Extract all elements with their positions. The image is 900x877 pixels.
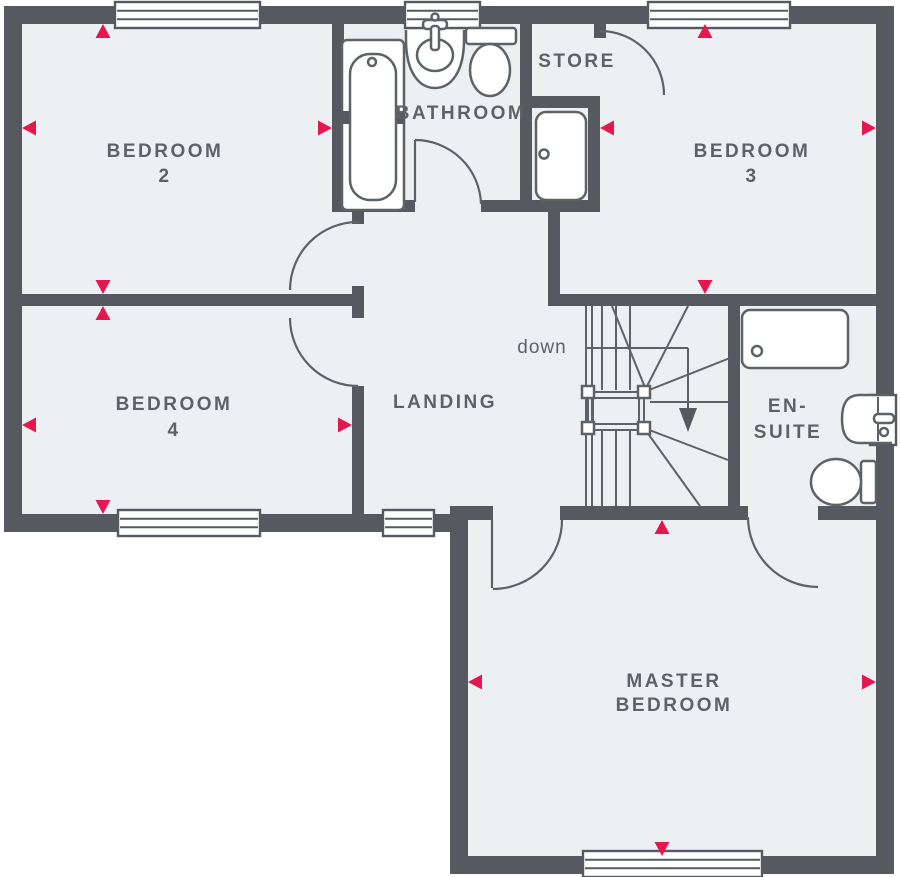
- bedroom3-number: 3: [745, 166, 758, 188]
- store-label: STORE: [538, 51, 616, 73]
- floor-plan: BEDROOM 2 BEDROOM 3 BEDROOM 4 BATHROOM S…: [0, 0, 900, 877]
- cylinder-icon: [536, 112, 586, 200]
- bedroom3-label: BEDROOM: [694, 141, 811, 163]
- ensuite-toilet-icon: [811, 459, 876, 505]
- bathroom-label: BATHROOM: [396, 103, 526, 125]
- bedroom2-number: 2: [158, 166, 171, 188]
- window-landing: [383, 510, 434, 536]
- bedroom4-label: BEDROOM: [116, 394, 233, 416]
- shower-icon: [742, 310, 848, 368]
- bath-icon: [341, 40, 405, 210]
- window-bedroom2: [115, 2, 260, 28]
- bedroom2-label: BEDROOM: [107, 141, 224, 163]
- ensuite-sink-icon: [842, 395, 894, 443]
- bedroom4-number: 4: [167, 420, 180, 442]
- newel-post: [638, 386, 650, 398]
- newel-post: [582, 386, 594, 398]
- stairs-down-label: down: [517, 337, 566, 359]
- master-label-line1: MASTER: [626, 671, 721, 693]
- landing-label: LANDING: [393, 392, 497, 414]
- window-master: [583, 851, 762, 877]
- master-label-line2: BEDROOM: [616, 695, 733, 717]
- ensuite-label-line2: SUITE: [754, 422, 822, 444]
- window-bedroom3: [648, 2, 790, 28]
- newel-post: [582, 422, 594, 434]
- newel-post: [638, 422, 650, 434]
- ensuite-label-line1: EN-: [768, 396, 808, 418]
- window-bedroom4: [118, 510, 260, 536]
